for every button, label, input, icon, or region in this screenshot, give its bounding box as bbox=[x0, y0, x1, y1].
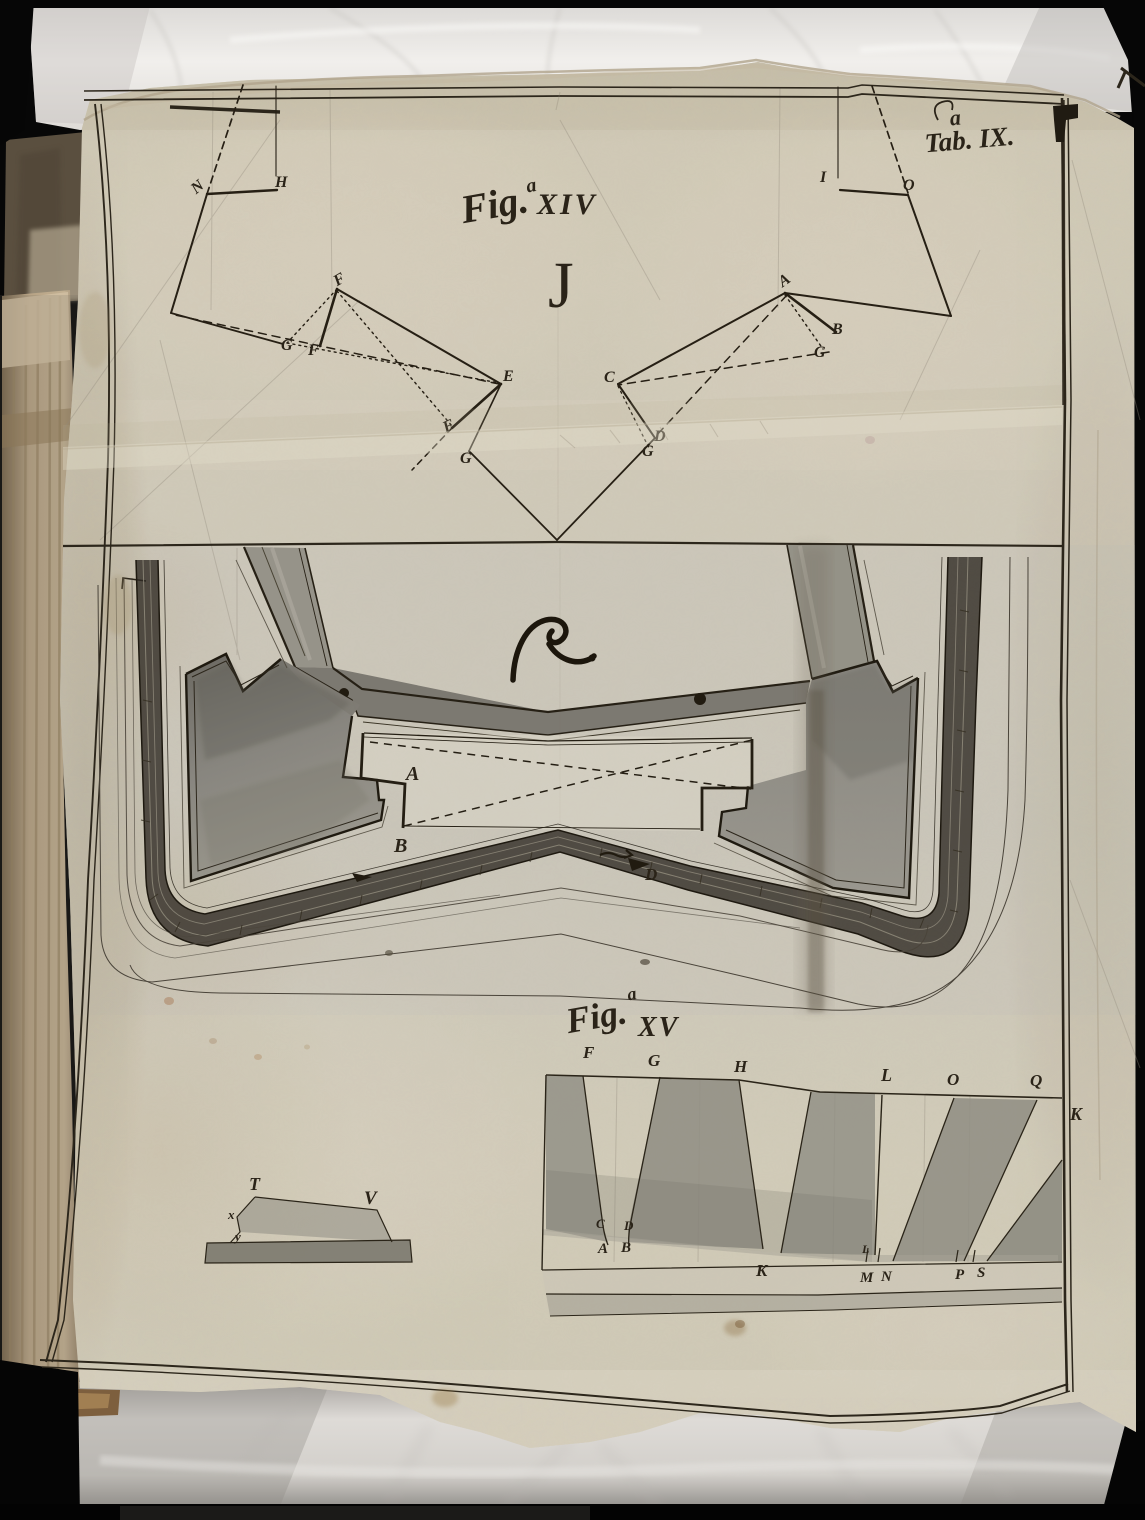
svg-text:G: G bbox=[648, 1051, 661, 1070]
svg-text:V: V bbox=[364, 1188, 378, 1209]
svg-text:H: H bbox=[733, 1057, 748, 1076]
svg-text:B: B bbox=[831, 321, 843, 338]
svg-text:x: x bbox=[227, 1207, 235, 1222]
svg-text:A: A bbox=[404, 763, 419, 785]
svg-text:C: C bbox=[596, 1216, 605, 1231]
svg-text:Q: Q bbox=[1030, 1071, 1042, 1090]
svg-text:G: G bbox=[460, 450, 472, 467]
svg-text:O: O bbox=[947, 1070, 959, 1089]
svg-text:F: F bbox=[307, 342, 319, 359]
svg-text:I: I bbox=[819, 169, 827, 186]
svg-text:A: A bbox=[597, 1241, 608, 1257]
svg-text:N: N bbox=[880, 1269, 893, 1285]
svg-text:H: H bbox=[274, 174, 288, 191]
svg-text:J: J bbox=[548, 249, 574, 322]
svg-text:L: L bbox=[861, 1242, 869, 1256]
svg-text:B: B bbox=[620, 1240, 631, 1256]
svg-text:M: M bbox=[859, 1270, 874, 1286]
svg-text:K: K bbox=[1069, 1104, 1084, 1124]
svg-text:C: C bbox=[604, 369, 615, 386]
svg-text:D: D bbox=[623, 1218, 634, 1233]
svg-text:L: L bbox=[880, 1065, 892, 1085]
svg-text:D: D bbox=[644, 865, 657, 884]
svg-text:O: O bbox=[903, 177, 915, 194]
svg-text:XIV: XIV bbox=[536, 188, 598, 221]
svg-text:S: S bbox=[977, 1265, 985, 1281]
svg-text:G: G bbox=[642, 443, 654, 460]
svg-text:y: y bbox=[233, 1229, 241, 1244]
svg-text:XV: XV bbox=[637, 1012, 680, 1043]
svg-text:T: T bbox=[249, 1174, 261, 1194]
svg-text:K: K bbox=[755, 1261, 769, 1280]
svg-text:G: G bbox=[281, 337, 293, 354]
svg-text:G: G bbox=[814, 344, 826, 361]
svg-text:B: B bbox=[393, 835, 407, 857]
svg-text:F: F bbox=[582, 1043, 595, 1062]
svg-text:P: P bbox=[955, 1267, 965, 1283]
svg-text:E: E bbox=[502, 368, 514, 385]
